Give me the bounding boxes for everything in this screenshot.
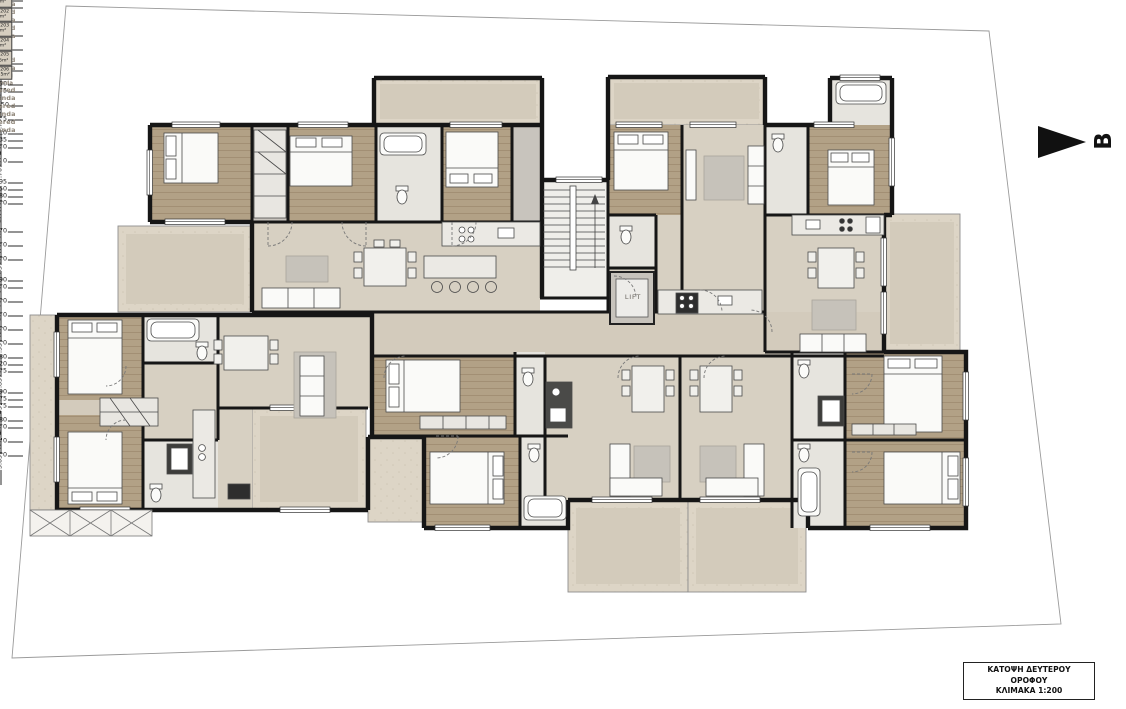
lift bbox=[610, 272, 654, 324]
pergola-hatch bbox=[30, 510, 152, 536]
floor-plan-sheet: 6.756.552.003.903.351.002.103.403.701.80… bbox=[0, 0, 1126, 709]
section-marker-icon bbox=[1038, 126, 1086, 158]
plan-graphics bbox=[0, 0, 1126, 709]
